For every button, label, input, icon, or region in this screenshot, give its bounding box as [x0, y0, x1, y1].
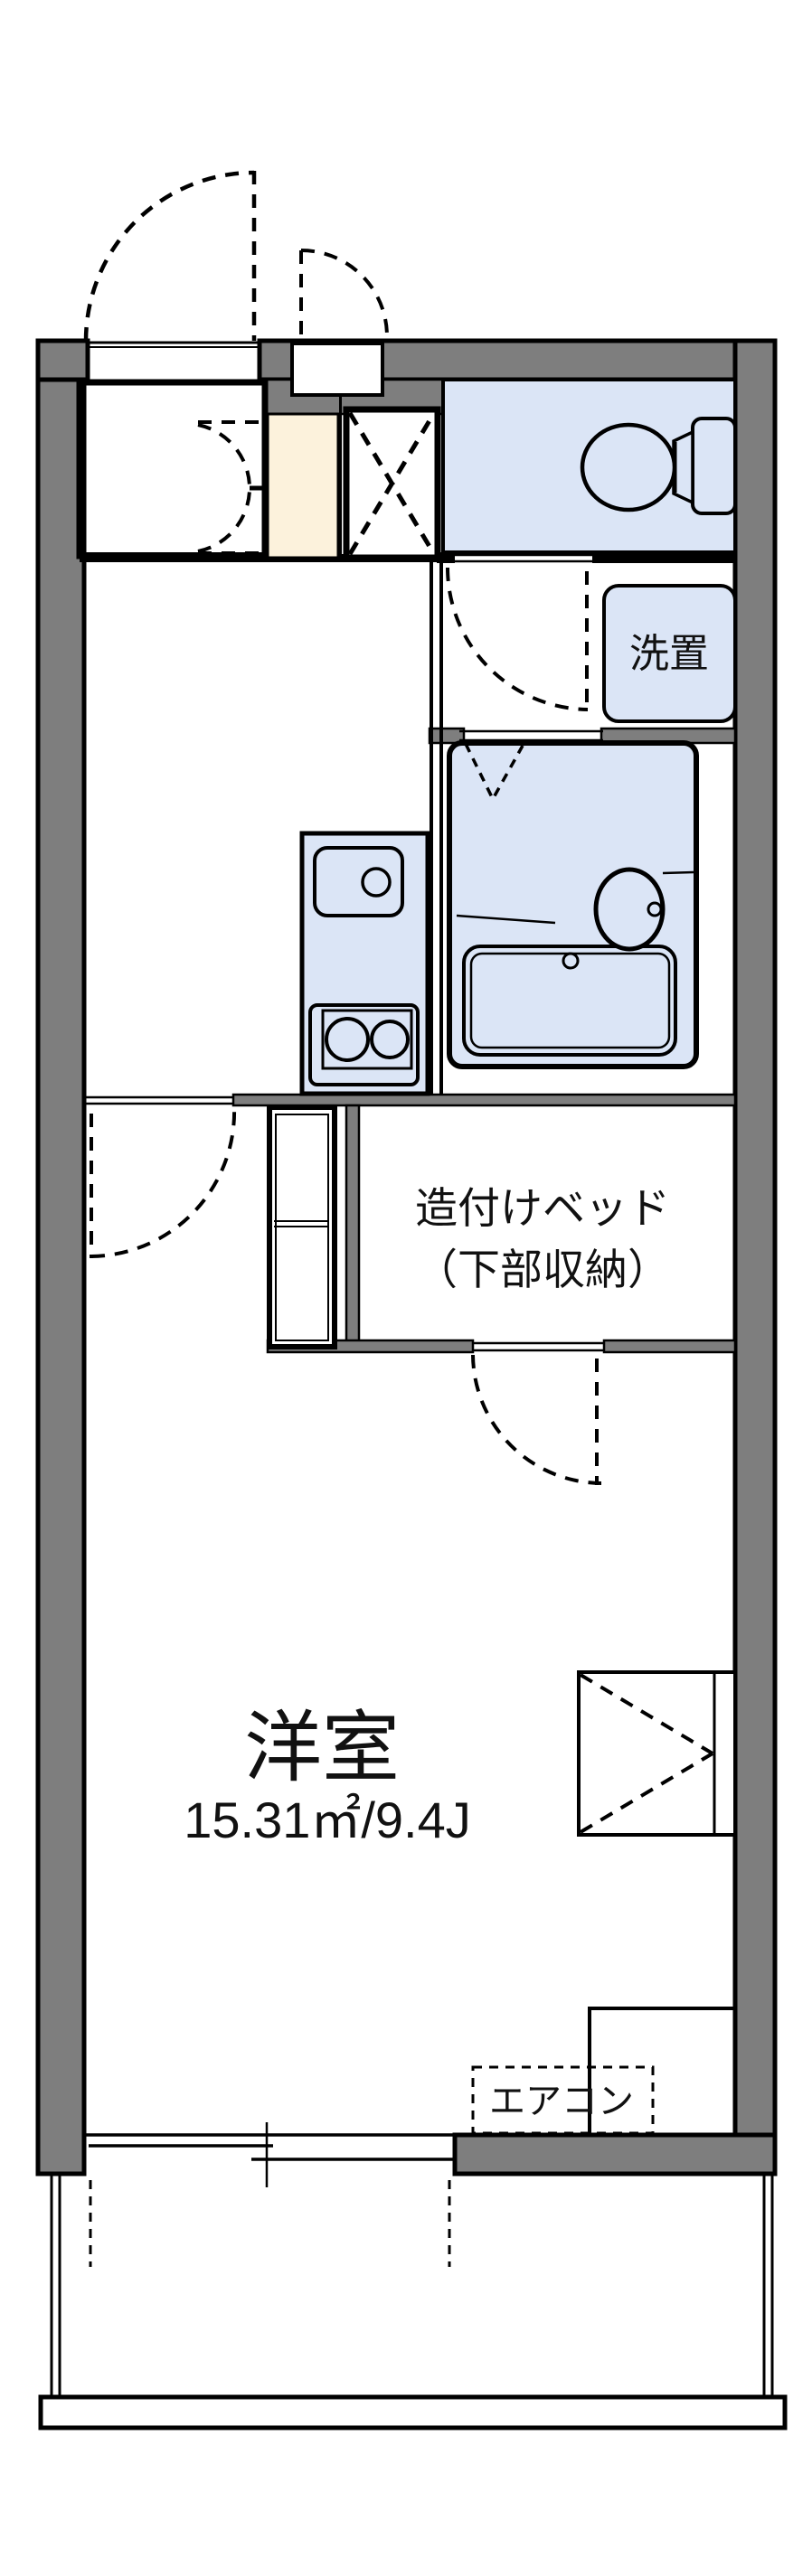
built-in-bed-label-line1: 造付けベッド	[415, 1184, 670, 1232]
floor-plan-drawing: 洗置 造付けベッド （下部収納） 洋室 15.31㎡/9.4J エアコン	[0, 0, 812, 2576]
bath-counter-line-2	[663, 872, 694, 873]
toilet-door-arc	[448, 568, 588, 710]
wash-basin	[596, 870, 663, 949]
main-room-name: 洋室	[244, 1705, 400, 1791]
toilet-bowl	[582, 425, 675, 510]
wall-closet-right	[346, 1105, 359, 1342]
floor-plan-page: 洗置 造付けベッド （下部収納） 洋室 15.31㎡/9.4J エアコン	[0, 0, 812, 2576]
meter-box-niche	[292, 343, 382, 395]
toilet-tank	[693, 418, 735, 513]
built-in-bed-label-line2: （下部収納）	[415, 1246, 670, 1293]
entrance-door-arc	[86, 173, 254, 341]
wall-hall-left-outer	[430, 554, 433, 1096]
bedroom-door2-arc	[473, 1355, 601, 1483]
swing-door-arc-bottom	[198, 490, 250, 551]
swing-door-arc-top	[198, 425, 250, 486]
main-room-area: 15.31㎡/9.4J	[184, 1791, 471, 1848]
washer-space-label: 洗置	[629, 632, 709, 676]
aircon-label: エアコン	[489, 2082, 634, 2121]
meter-box-door-arc	[301, 250, 387, 336]
wall-bed-bottom-right	[604, 1340, 735, 1352]
wall-bottom	[455, 2135, 775, 2174]
balcony-railing	[41, 2397, 785, 2428]
wall-top-left	[38, 341, 88, 380]
wall-bed-top	[233, 1095, 735, 1105]
bedroom-door1-arc	[91, 1107, 234, 1256]
wall-left	[38, 341, 84, 2174]
genkan-floor	[268, 414, 338, 558]
wall-hall-left-inner	[439, 554, 443, 1096]
wall-right	[735, 341, 775, 2174]
entrance-hall-outline	[80, 382, 265, 556]
